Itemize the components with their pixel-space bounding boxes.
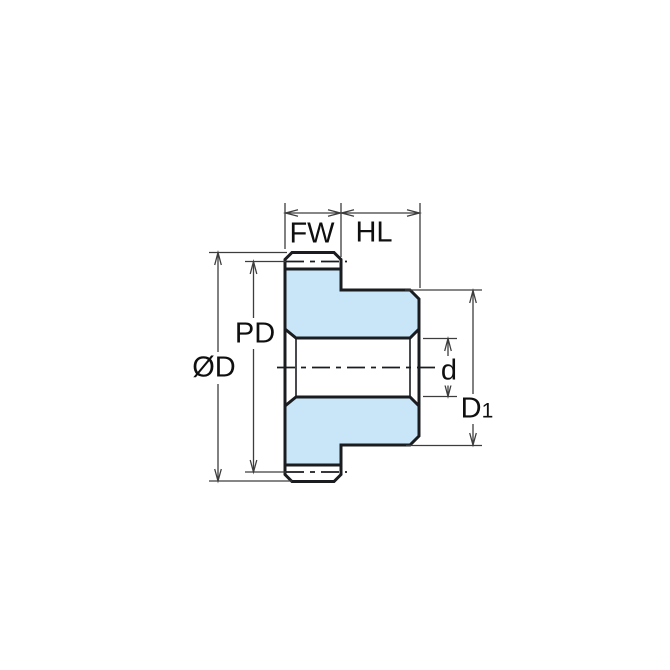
pitch-diameter-label: PD	[233, 320, 277, 349]
hub-diameter-subscript: 1	[482, 400, 494, 423]
hub-diameter-label: D1	[459, 395, 496, 424]
bore-diameter-label: d	[439, 357, 459, 386]
face-width-label: FW	[287, 220, 336, 249]
fw-dimension-line	[286, 210, 341, 217]
outer-diameter-label: ØD	[190, 354, 238, 383]
hl-dimension-line	[342, 210, 420, 217]
hub-diameter-base: D	[461, 393, 482, 425]
gear-lower-body	[285, 397, 419, 465]
gear-tooth-bottom	[285, 465, 341, 482]
gear-dimension-diagram: FW HL PD ØD d D1	[0, 0, 670, 670]
hub-length-label: HL	[353, 219, 394, 248]
technical-drawing-svg	[0, 0, 670, 670]
gear-upper-body	[285, 269, 419, 338]
